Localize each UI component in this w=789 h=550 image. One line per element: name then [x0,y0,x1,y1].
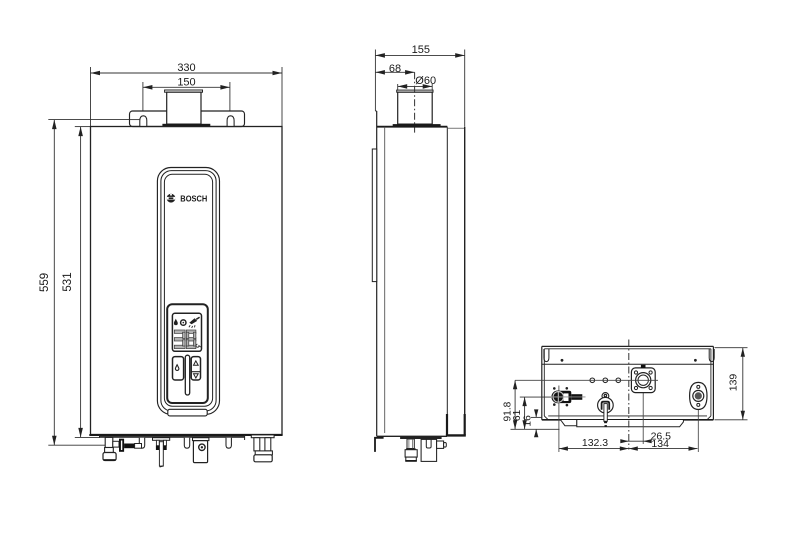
svg-text:61: 61 [512,409,523,421]
svg-text:16: 16 [523,415,534,427]
svg-text:139: 139 [728,374,740,392]
svg-text:68: 68 [389,63,401,75]
svg-text:26.5: 26.5 [651,430,672,442]
svg-text:559: 559 [39,273,51,292]
svg-text:531: 531 [62,272,74,291]
svg-text:132.3: 132.3 [582,437,608,449]
svg-text:150: 150 [177,76,195,88]
svg-text:330: 330 [177,62,195,74]
svg-text:Ø60: Ø60 [415,75,436,87]
svg-text:BOSCH: BOSCH [180,194,207,203]
svg-text:155: 155 [412,44,430,56]
